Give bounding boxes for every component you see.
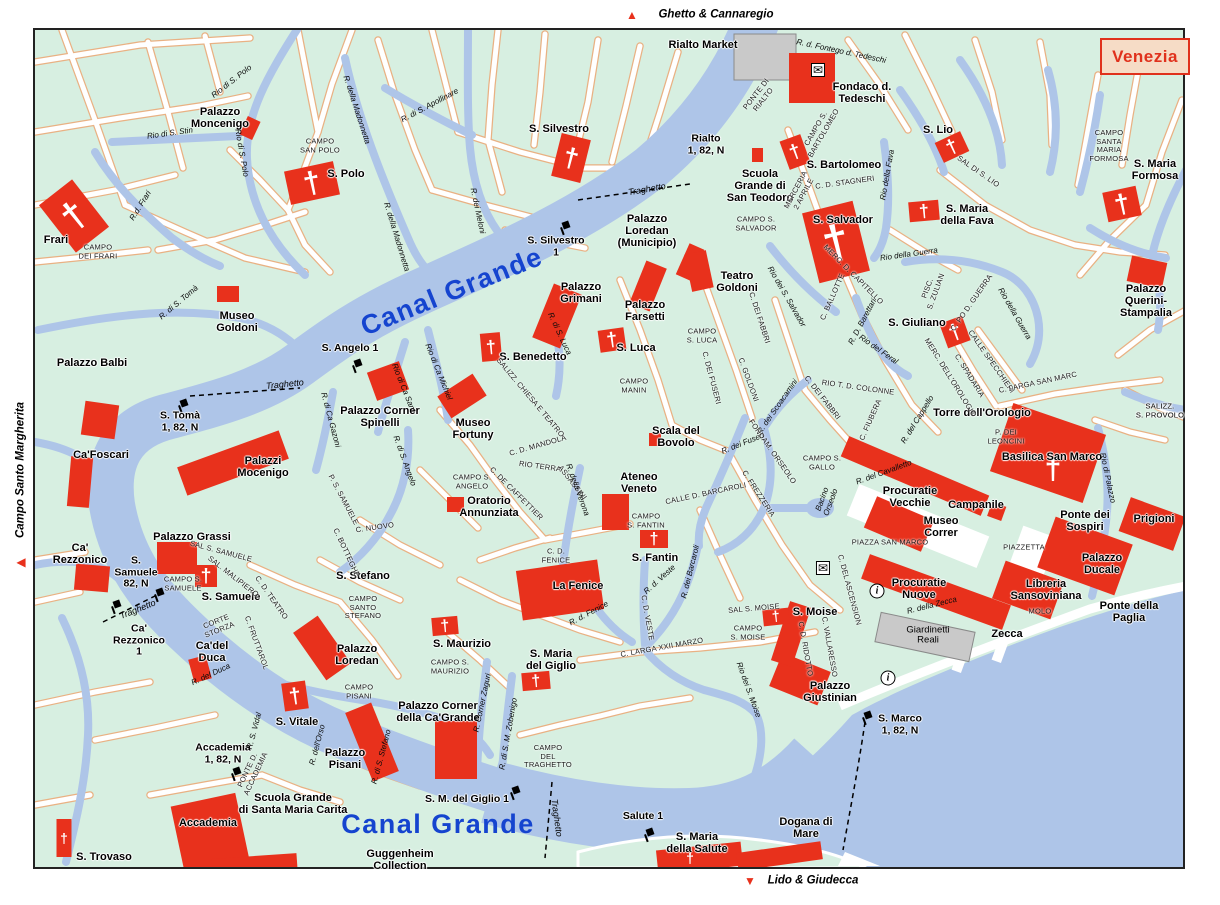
map-label: CAMPO S. MOISE — [731, 624, 766, 641]
map-label: S. Salvador — [813, 214, 873, 226]
rialto-market-building — [734, 34, 796, 80]
map-label: CAMPO S. SALVADOR — [735, 215, 776, 232]
map-label: Guggenheim Collection — [366, 848, 433, 872]
map-label: CAMPO SAN POLO — [300, 137, 340, 154]
church-icon: † — [57, 819, 72, 857]
map-label: Giardinetti Reali — [906, 626, 949, 647]
map-label: C. D. FENICE — [542, 547, 571, 564]
building — [602, 494, 629, 530]
map-label: Accademia — [179, 817, 237, 829]
map-label: S. Marco 1, 82, N — [878, 713, 922, 736]
map-label: Ca'del Duca — [196, 640, 229, 664]
map-label: Frari — [44, 234, 68, 246]
map-label: S. Angelo 1 — [322, 343, 379, 355]
map-label: S. Trovaso — [76, 851, 132, 863]
map-label: Scuola Grande di San Teodoro — [727, 168, 793, 204]
map-title: Venezia — [1112, 47, 1178, 67]
map-label: Campo Santo Margherita — [15, 402, 28, 538]
map-label: Dogana di Mare — [779, 816, 832, 840]
map-label: Museo Correr — [924, 515, 959, 539]
map-label: Palazzo Farsetti — [625, 299, 665, 323]
map-label: Procuratie Nuove — [892, 577, 946, 601]
map-label: Teatro Goldoni — [716, 270, 758, 294]
map-label: Torre dell'Orologio — [933, 407, 1031, 419]
map-label: CAMPO S. LUCA — [687, 327, 718, 344]
map-label: S. Luca — [616, 342, 655, 354]
map-label: S. Benedetto — [499, 351, 566, 363]
map-label: CAMPO S. GALLO — [803, 454, 841, 471]
map-label: S. Maria del Giglio — [526, 648, 576, 672]
map-label: CAMPO S. MAURIZIO — [431, 658, 469, 675]
info-icon: i — [881, 671, 896, 686]
map-label: S. Vitale — [276, 716, 319, 728]
map-label: Palazzo Moncenigo — [191, 106, 249, 130]
map-label: Libreria Sansoviniana — [1011, 578, 1082, 602]
map-label: Oratorio Annunziata — [459, 495, 518, 519]
map-label: Palazzi Mocenigo — [237, 455, 288, 479]
map-label: Campanile — [948, 499, 1004, 511]
map-label: S. Tomà 1, 82, N — [160, 410, 200, 433]
building — [81, 401, 119, 439]
map-label: S. Stefano — [336, 570, 390, 582]
map-label: Palazzo Loredan — [335, 643, 378, 667]
building — [67, 456, 93, 508]
post-office-icon: ✉ — [816, 561, 830, 575]
map-label: Ateneo Veneto — [620, 471, 657, 495]
map-label: Rialto Market — [668, 39, 737, 51]
map-label: Museo Fortuny — [453, 417, 494, 441]
map-label: S. Maria della Fava — [940, 203, 993, 227]
map-label: Procuratie Vecchie — [883, 485, 937, 509]
church-icon: † — [281, 680, 309, 711]
map-label: S. Moise — [793, 606, 838, 618]
post-office-icon: ✉ — [811, 63, 825, 77]
map-label: Basilica San Marco — [1002, 451, 1102, 463]
map-title-box: Venezia — [1100, 38, 1190, 75]
map-label: Ponte della Paglia — [1100, 600, 1159, 624]
map-label: PIAZZETTA — [1003, 544, 1045, 553]
map-label: S. M. del Giglio 1 — [425, 794, 509, 806]
building — [789, 53, 835, 103]
map-label: Palazzo Balbi — [57, 357, 127, 369]
map-label: S. Silvestro — [529, 123, 589, 135]
map-label: S. Samuele 82, N — [114, 556, 157, 591]
map-label: S. Lio — [923, 124, 953, 136]
map-label: Zecca — [991, 628, 1022, 640]
map-label: Ghetto & Cannaregio — [658, 9, 773, 22]
map-label: S. Maria della Salute — [666, 831, 727, 855]
map-label: Palazzo Pisani — [325, 747, 365, 771]
map-label: Ponte dei Sospiri — [1060, 509, 1110, 533]
map-label: Salute 1 — [623, 811, 663, 823]
map-label: Palazzo Grimani — [560, 281, 602, 305]
map-label: Palazzo Querini- Stampalia — [1120, 283, 1172, 319]
map-label: CAMPO SANTO STEFANO — [345, 595, 381, 621]
map-label: MOLO — [1029, 608, 1052, 617]
map-label: Rialto 1, 82, N — [688, 133, 725, 156]
map-label: Canal Grande — [341, 810, 535, 840]
info-icon: i — [870, 584, 885, 599]
map-label: P. DEI LEONCINI — [987, 428, 1024, 445]
map-label: S. Maria Formosa — [1132, 158, 1178, 182]
map-label: CAMPO S. ANGELO — [453, 473, 491, 490]
church-icon: † — [431, 616, 458, 636]
map-label: S. Silvestro 1 — [527, 235, 584, 258]
building — [752, 148, 763, 162]
map-label: Palazzo Ducale — [1082, 552, 1122, 576]
map-label: Fondaco d. Tedeschi — [833, 81, 892, 105]
map-label: Palazzo Loredan (Municipio) — [618, 213, 677, 249]
map-label: CAMPO DEI FRARI — [79, 243, 118, 260]
map-label: CAMPO DEL TRAGHETTO — [524, 744, 572, 770]
arrow-left-icon: ◀ — [16, 556, 25, 568]
map-label: CAMPO MANIN — [620, 377, 649, 394]
venice-map: Venezia Ghetto & CannaregioLido & Giudec… — [0, 0, 1220, 900]
map-label: CAMPO S. FANTIN — [627, 512, 665, 529]
church-icon: † — [521, 671, 550, 691]
map-label: Scuola Grande di Santa Maria Carita — [239, 792, 348, 816]
map-label: La Fenice — [553, 580, 604, 592]
map-label: Scala del Bovolo — [652, 425, 700, 449]
map-label: CAMPO S. SAMUELE — [164, 575, 202, 592]
map-label: Ca'Foscari — [73, 449, 129, 461]
map-label: S. Polo — [327, 168, 364, 180]
arrow-up-icon: ▲ — [626, 9, 638, 21]
map-label: Ca' Rezzonico — [53, 542, 107, 566]
map-label: Palazzo Giustinian — [803, 680, 857, 704]
map-label: Museo Goldoni — [216, 310, 258, 334]
map-label: Prigioni — [1134, 513, 1175, 525]
map-label: CAMPO SANTA MARIA FORMOSA — [1089, 129, 1128, 164]
map-label: Accademia 1, 82, N — [195, 742, 250, 765]
map-label: S. Bartolomeo — [807, 159, 882, 171]
map-label: Palazzo Corner della Ca'Grande — [396, 700, 479, 724]
map-label: PIAZZA SAN MARCO — [852, 539, 929, 548]
map-label: Ca' Rezzonico 1 — [113, 624, 165, 659]
map-label: Lido & Giudecca — [768, 875, 859, 888]
church-icon: † — [640, 530, 668, 548]
building — [74, 564, 110, 593]
arrow-down-icon: ▼ — [744, 875, 756, 887]
church-icon: † — [908, 200, 940, 223]
map-label: SALIZZ. S. PROVOLO — [1136, 402, 1184, 419]
map-label: S. Maurizio — [433, 638, 491, 650]
building — [217, 286, 239, 302]
map-label: S. Giuliano — [888, 317, 945, 329]
map-label: CAMPO PISANI — [345, 683, 374, 700]
